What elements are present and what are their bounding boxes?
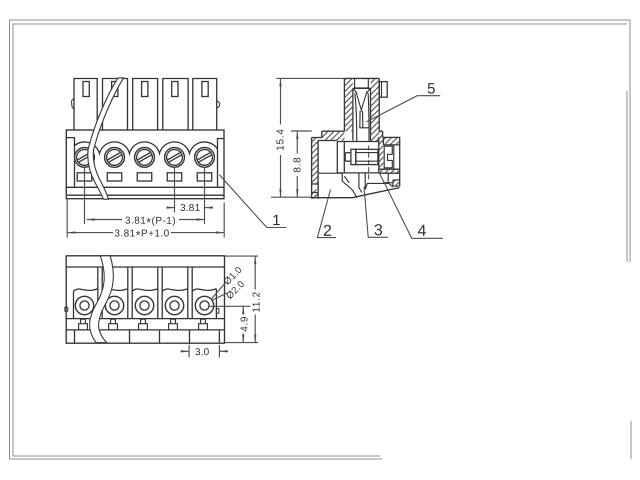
- svg-text:15.4: 15.4: [275, 128, 286, 150]
- svg-text:4.9: 4.9: [239, 316, 250, 332]
- svg-text:11.2: 11.2: [251, 291, 262, 313]
- svg-text:8.8: 8.8: [292, 157, 303, 173]
- svg-text:2: 2: [323, 223, 332, 240]
- svg-text:1: 1: [272, 212, 281, 229]
- svg-text:3.81: 3.81: [180, 203, 201, 214]
- svg-text:3.0: 3.0: [195, 347, 210, 358]
- svg-text:4: 4: [418, 223, 427, 240]
- svg-text:5: 5: [427, 80, 436, 97]
- svg-text:3: 3: [374, 222, 383, 239]
